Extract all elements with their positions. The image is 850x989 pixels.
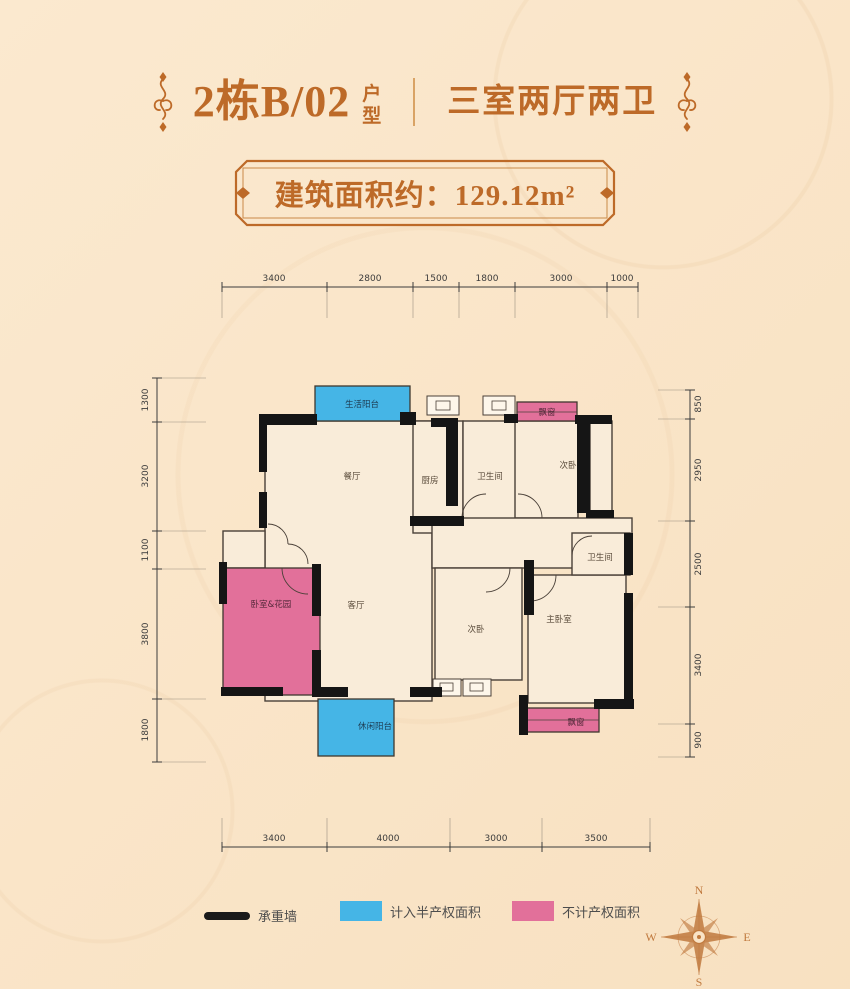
room-bedroom-mid [435, 568, 522, 680]
compass-rose: N W E S [645, 883, 750, 989]
room-label-balcony-bottom: 休闲阳台 [358, 721, 392, 732]
legend-label-no-area: 不计产权面积 [562, 902, 640, 921]
room-label-gift-room: 卧室&花园 [251, 599, 292, 610]
legend-label-bearing-wall: 承重墙 [258, 906, 297, 925]
room-label-bedroom-mid: 次卧 [467, 624, 485, 635]
dim-top-4: 1800 [476, 274, 499, 284]
half-area-swatch-icon [340, 901, 382, 921]
legend-item-half-area: 计入半产权面积 [340, 901, 481, 921]
gift-room-area [223, 568, 320, 695]
dim-left-2: 3200 [141, 464, 151, 487]
dim-right-1: 850 [694, 395, 704, 412]
room-label-balcony-top: 生活阳台 [345, 399, 379, 410]
right-strip [590, 421, 612, 518]
legend-item-bearing-wall: 承重墙 [204, 906, 297, 925]
entry-nook [223, 531, 265, 568]
dim-right-5: 900 [694, 731, 704, 748]
dim-top-5: 3000 [550, 274, 573, 284]
room-label-master: 主卧室 [546, 614, 572, 625]
dim-top-6: 1000 [611, 274, 634, 284]
room-label-bay-bottom: 飘窗 [567, 717, 584, 728]
room-label-bath-bottom: 卫生间 [587, 552, 613, 563]
dim-left-3: 1100 [141, 538, 151, 561]
floorplan-page: { "header": { "title_main": "2栋B/02", "t… [0, 0, 850, 989]
ac-unit-icon [427, 396, 459, 415]
room-label-living: 客厅 [347, 600, 365, 611]
ac-unit-icon [483, 396, 515, 415]
dim-left-1: 1300 [141, 388, 151, 411]
dim-top-2: 2800 [359, 274, 382, 284]
dim-bottom-2: 4000 [377, 834, 400, 844]
dim-right-2: 2950 [694, 458, 704, 481]
room-label-bedroom-top: 次卧 [559, 460, 577, 471]
dim-left-5: 1800 [141, 718, 151, 741]
compass-north-label: N [695, 883, 704, 897]
compass-south-label: S [696, 975, 703, 989]
no-area-swatch-icon [512, 901, 554, 921]
legend-item-no-area: 不计产权面积 [512, 901, 640, 921]
room-label-bath-top: 卫生间 [477, 471, 503, 482]
dim-right-3: 2500 [694, 552, 704, 575]
dim-bottom-1: 3400 [263, 834, 286, 844]
floor-plan: 3400 2800 1500 1800 3000 1000 3400 4000 … [0, 0, 850, 989]
room-bath-top [463, 421, 520, 520]
bearing-wall-swatch-icon [204, 912, 250, 920]
room-master [528, 575, 626, 703]
room-label-dining: 餐厅 [343, 472, 361, 482]
dim-bottom-4: 3500 [585, 834, 608, 844]
ac-unit-icon [463, 679, 491, 696]
dim-top-1: 3400 [263, 274, 286, 284]
legend: 承重墙 计入半产权面积 不计产权面积 [0, 900, 850, 936]
room-label-bay-top: 飘窗 [538, 407, 555, 418]
room-label-kitchen: 厨房 [421, 475, 438, 486]
dim-right-4: 3400 [694, 653, 704, 676]
legend-label-half-area: 计入半产权面积 [390, 902, 481, 921]
dim-left-4: 3800 [141, 622, 151, 645]
dim-bottom-3: 3000 [485, 834, 508, 844]
dim-top-3: 1500 [425, 274, 448, 284]
